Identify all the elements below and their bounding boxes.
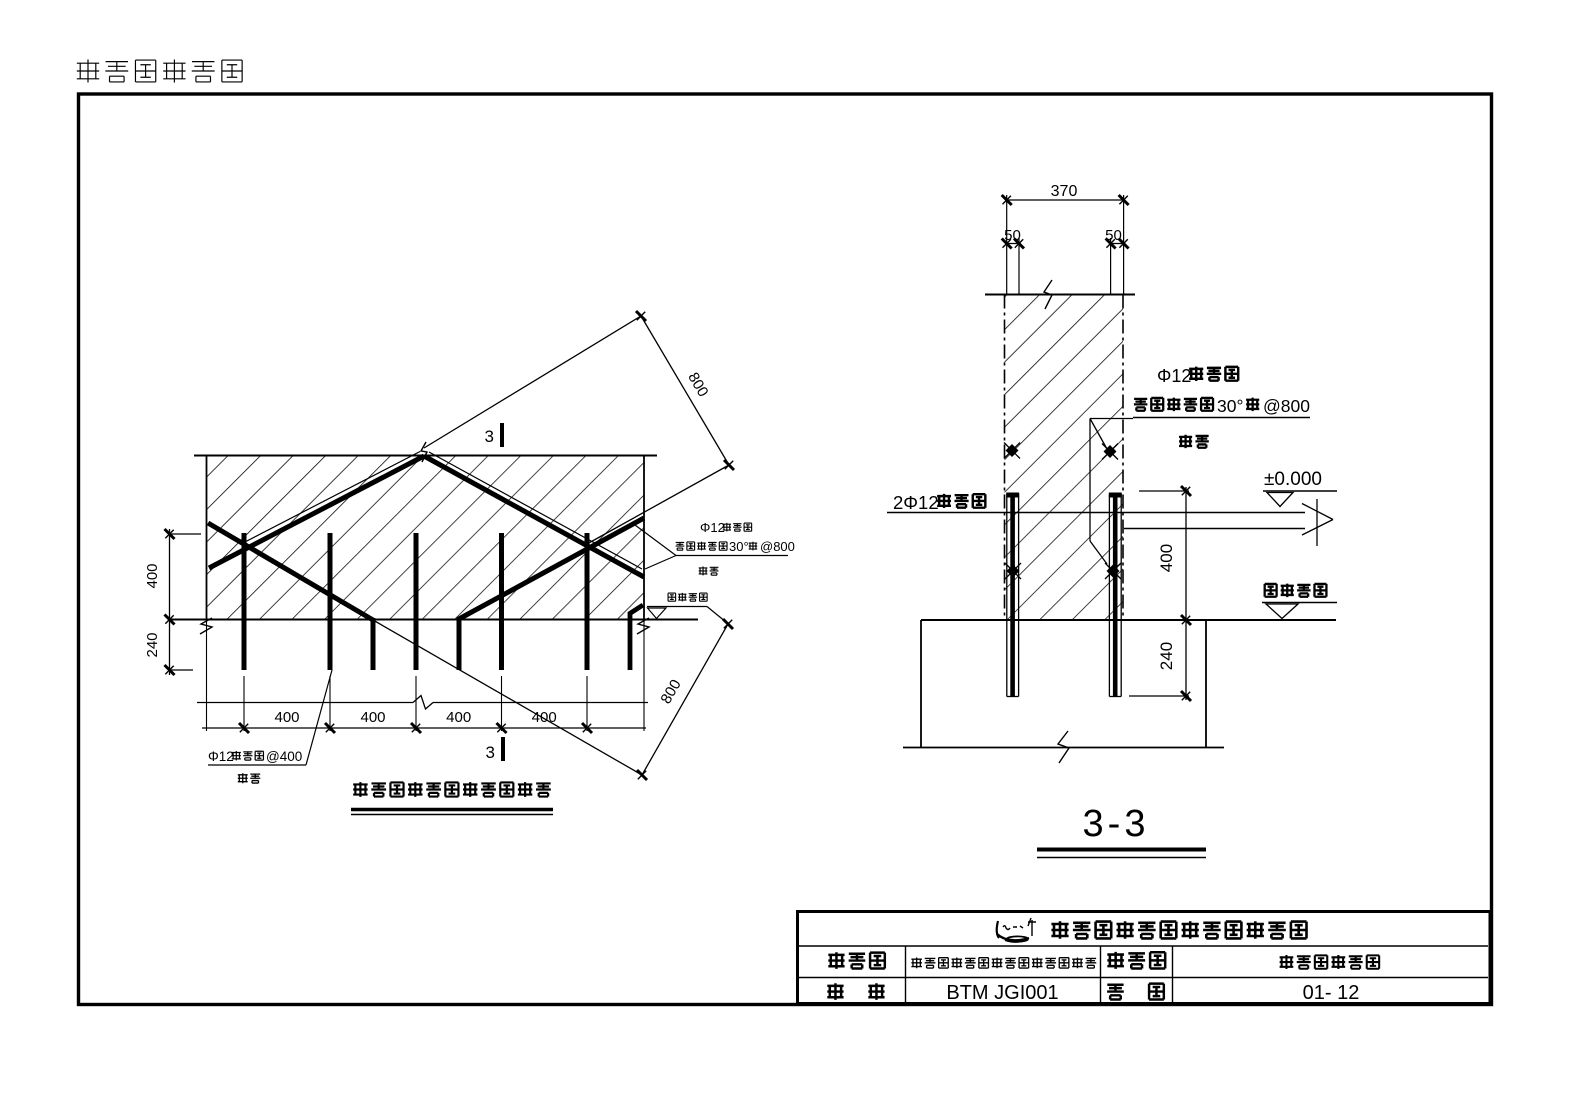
svg-text:Φ12: Φ12 <box>700 520 725 535</box>
svg-text:30°: 30° <box>1217 396 1243 416</box>
svg-text:Φ12: Φ12 <box>208 749 234 764</box>
svg-text:400: 400 <box>144 563 161 588</box>
svg-text:400: 400 <box>1157 544 1176 572</box>
svg-text:240: 240 <box>1157 642 1176 670</box>
svg-text:±0.000: ±0.000 <box>1264 469 1322 490</box>
svg-text:370: 370 <box>1051 183 1078 200</box>
svg-text:3-3: 3-3 <box>1083 803 1150 845</box>
svg-text:400: 400 <box>360 709 385 726</box>
svg-text:2Φ12: 2Φ12 <box>893 492 939 513</box>
svg-text:BTM JGI001: BTM JGI001 <box>946 982 1058 1004</box>
svg-text:3: 3 <box>485 427 494 446</box>
svg-text:400: 400 <box>446 709 471 726</box>
svg-text:Φ12: Φ12 <box>1157 366 1191 386</box>
svg-text:3: 3 <box>486 743 495 762</box>
svg-text:400: 400 <box>274 709 299 726</box>
svg-text:@800: @800 <box>1263 396 1310 416</box>
svg-text:01- 12: 01- 12 <box>1303 982 1360 1004</box>
svg-text:30°: 30° <box>729 539 749 554</box>
svg-text:@800: @800 <box>760 539 795 554</box>
svg-text:240: 240 <box>144 632 161 657</box>
svg-text:@400: @400 <box>266 749 302 764</box>
